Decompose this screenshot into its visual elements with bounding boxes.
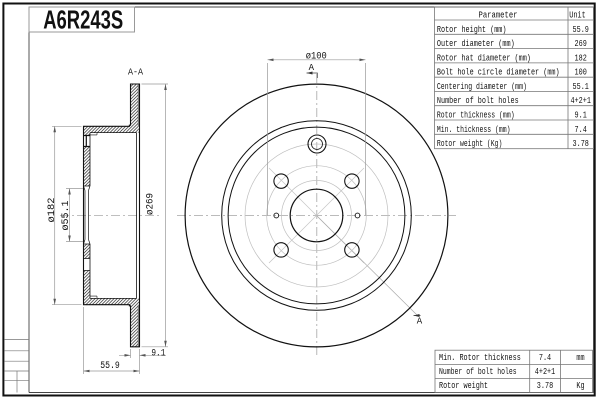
svg-text:A: A — [309, 63, 315, 73]
svg-text:Rotor weight (Kg): Rotor weight (Kg) — [437, 139, 502, 149]
svg-text:Rotor height (mm): Rotor height (mm) — [437, 25, 507, 35]
svg-text:Kg: Kg — [576, 381, 584, 391]
svg-text:Unit: Unit — [569, 10, 586, 20]
svg-text:4+2+1: 4+2+1 — [570, 96, 591, 106]
svg-text:mm: mm — [576, 353, 584, 363]
svg-text:4+2+1: 4+2+1 — [535, 367, 556, 377]
svg-text:55.9: 55.9 — [100, 361, 120, 372]
svg-text:7.4: 7.4 — [539, 353, 551, 363]
svg-text:ø182: ø182 — [47, 198, 58, 223]
svg-text:3.78: 3.78 — [537, 381, 553, 391]
svg-text:Rotor hat diameter (mm): Rotor hat diameter (mm) — [437, 53, 531, 63]
svg-text:Number of bolt holes: Number of bolt holes — [437, 96, 519, 106]
svg-text:55.9: 55.9 — [573, 25, 589, 35]
svg-text:3.78: 3.78 — [573, 139, 589, 149]
svg-text:Centering diameter (mm): Centering diameter (mm) — [437, 82, 527, 92]
svg-text:9.1: 9.1 — [575, 111, 587, 121]
svg-text:269: 269 — [575, 39, 587, 49]
svg-text:55.1: 55.1 — [573, 82, 589, 92]
svg-text:Parameter: Parameter — [479, 10, 518, 20]
svg-text:A-A: A-A — [128, 67, 143, 78]
svg-text:7.4: 7.4 — [575, 125, 587, 135]
svg-text:Outer diameter (mm): Outer diameter (mm) — [437, 39, 515, 49]
svg-text:ø269: ø269 — [146, 193, 157, 215]
svg-text:ø100: ø100 — [306, 51, 327, 62]
svg-text:9.1: 9.1 — [151, 349, 165, 360]
svg-text:182: 182 — [575, 53, 587, 63]
svg-text:A: A — [417, 317, 423, 327]
svg-text:Min. thickness (mm): Min. thickness (mm) — [437, 125, 511, 135]
svg-text:ø55.1: ø55.1 — [61, 201, 72, 231]
svg-text:Bolt hole circle diameter (mm): Bolt hole circle diameter (mm) — [437, 68, 560, 78]
svg-text:Number of bolt holes: Number of bolt holes — [439, 367, 517, 377]
svg-text:Min. Rotor thickness: Min. Rotor thickness — [439, 353, 521, 363]
svg-text:100: 100 — [575, 68, 587, 78]
svg-text:Rotor weight: Rotor weight — [439, 381, 488, 391]
svg-text:A6R243S: A6R243S — [43, 7, 123, 35]
svg-text:Rotor thickness (mm): Rotor thickness (mm) — [437, 111, 515, 121]
